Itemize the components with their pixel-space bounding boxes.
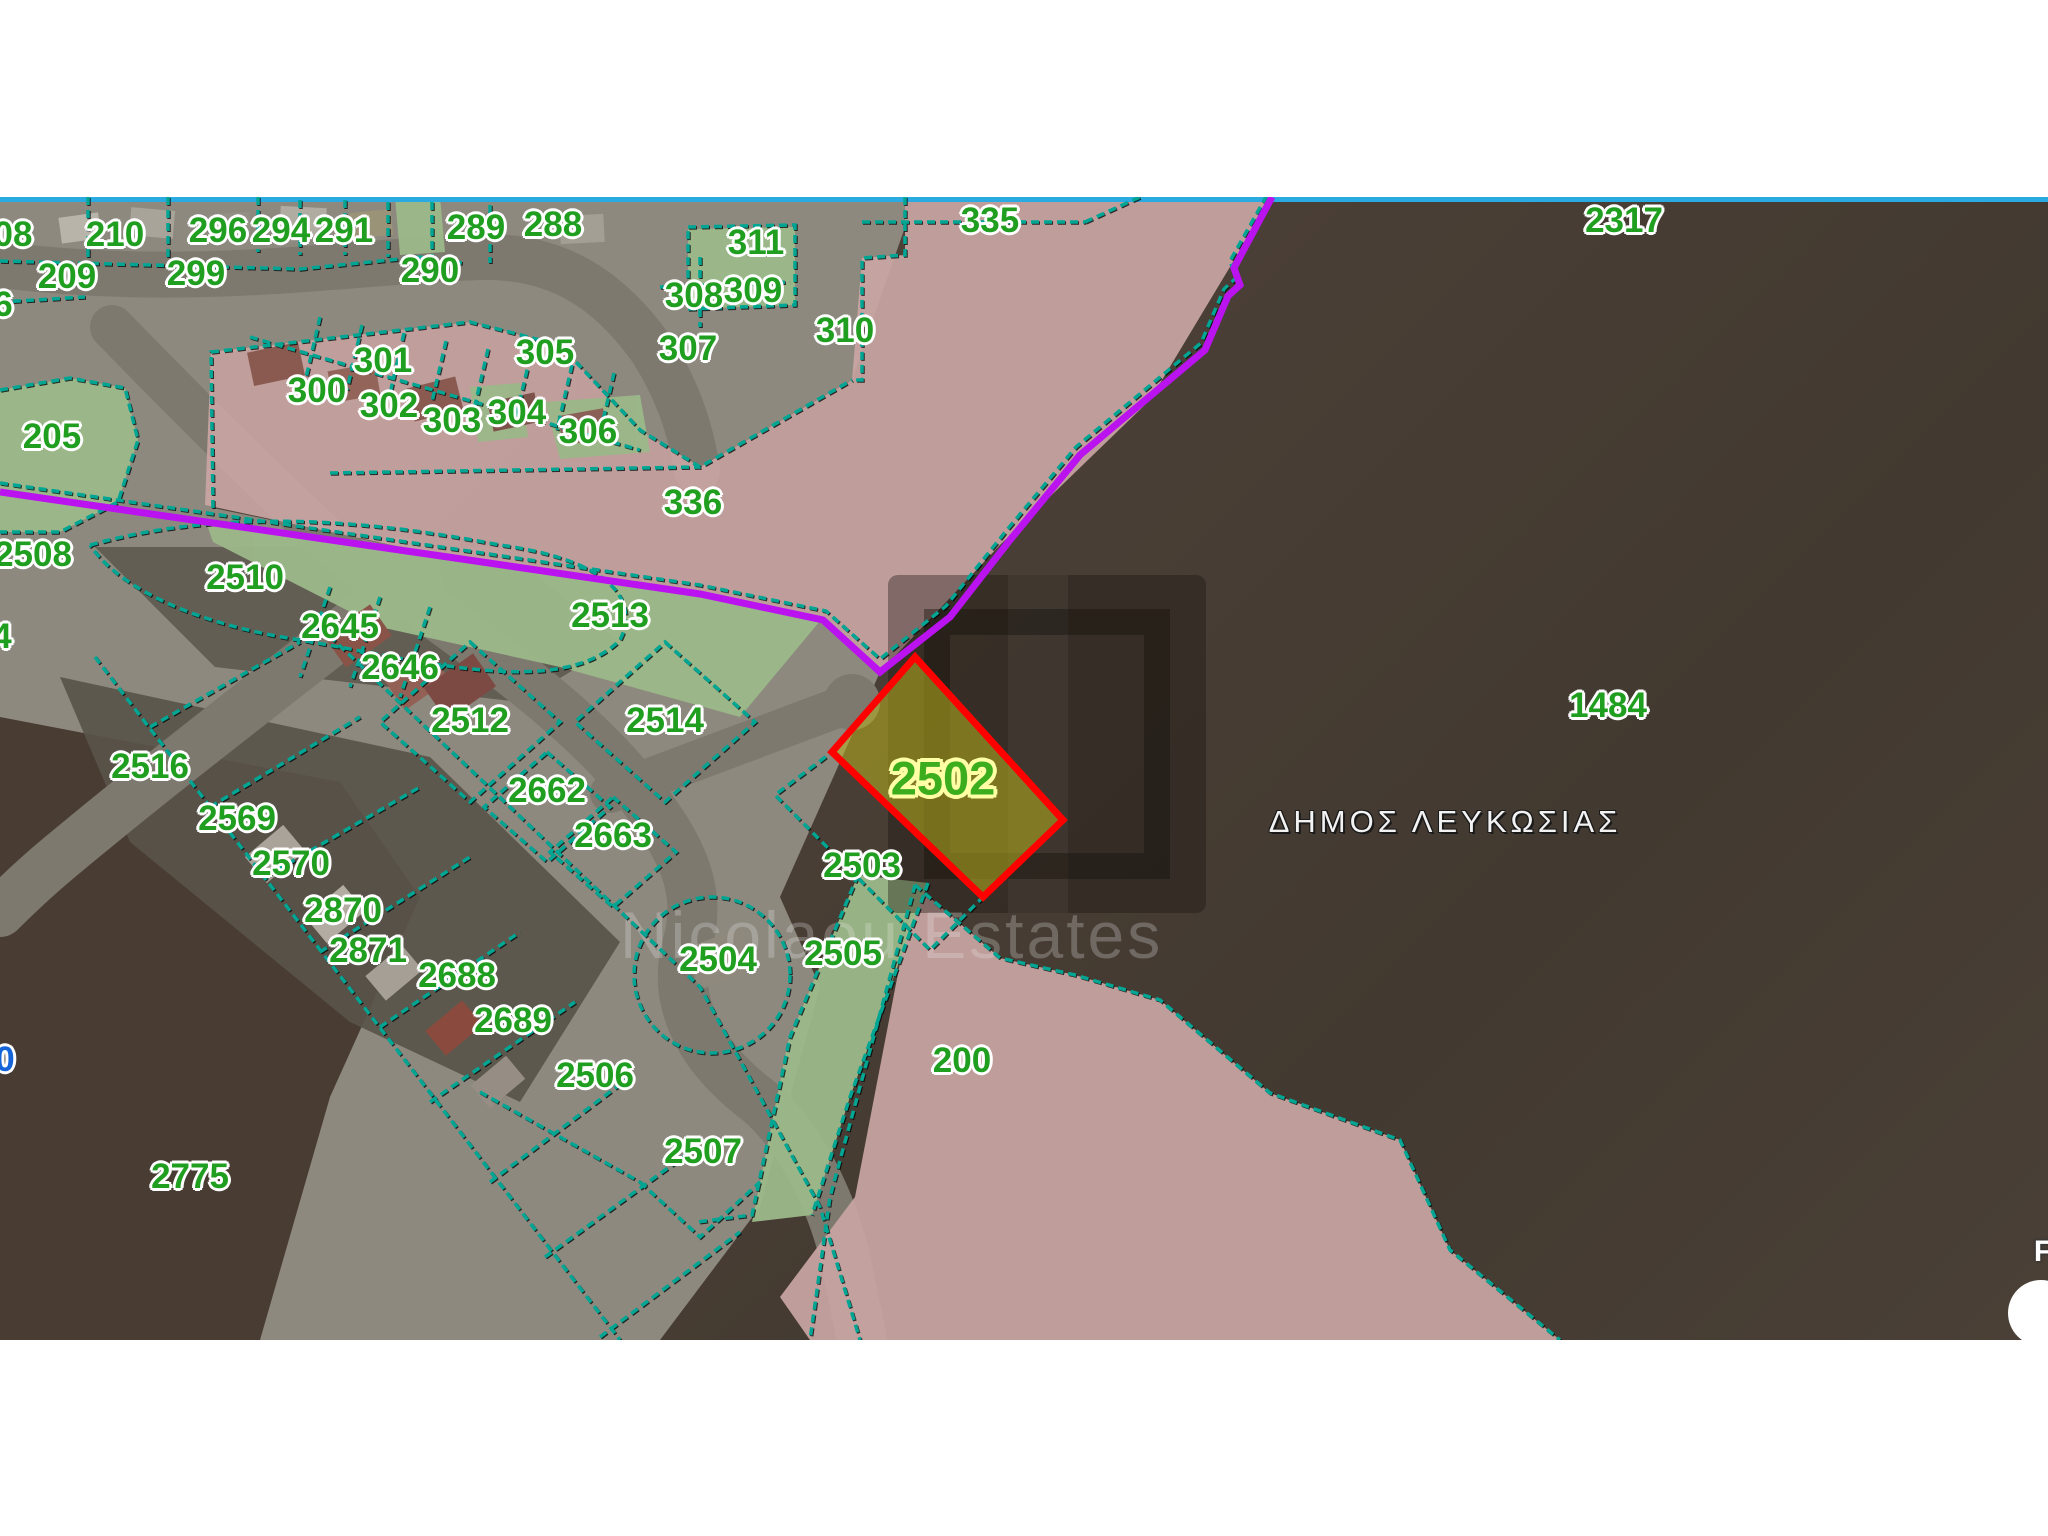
teal-parcel-lines: [0, 197, 1560, 1340]
highlighted-parcel-2502[interactable]: [832, 657, 1063, 897]
bottom-white-band: [0, 1340, 2048, 1536]
cadastral-map-screenshot: Nicolaou Estates: [0, 0, 2048, 1536]
satellite-map-viewport[interactable]: Nicolaou Estates: [0, 197, 2048, 1340]
municipal-boundary-line: [0, 197, 1272, 672]
top-boundary-line: [0, 197, 2048, 202]
parcel-boundaries-graphic: [0, 197, 2048, 1340]
top-white-band: [0, 0, 2048, 197]
